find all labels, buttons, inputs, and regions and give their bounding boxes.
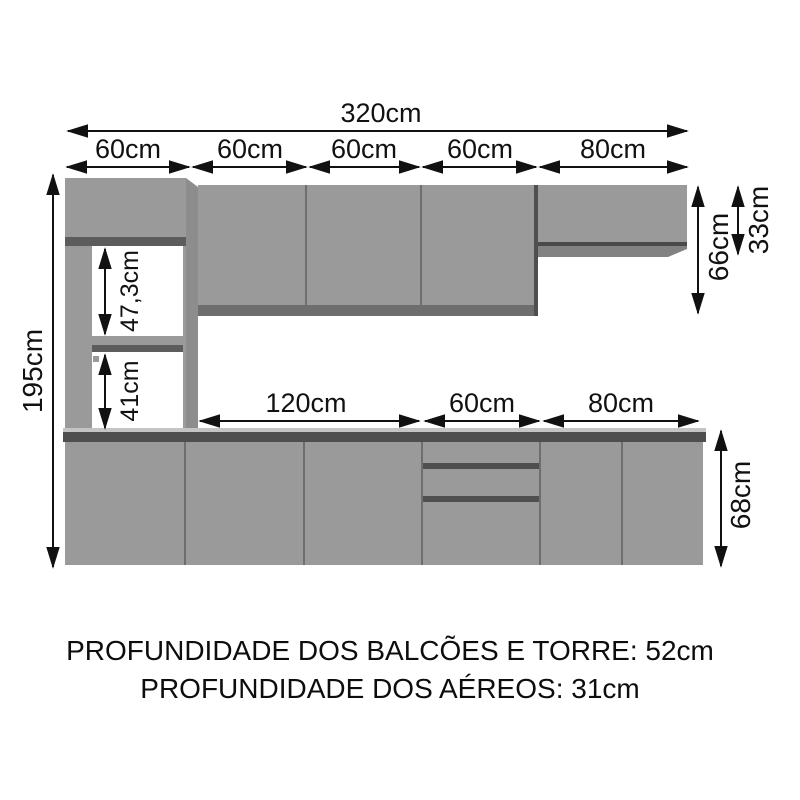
drawer-gap-line-1 xyxy=(423,463,539,469)
countertop-front-edge xyxy=(63,432,706,442)
dim-wall-tall-label: 66cm xyxy=(703,213,734,281)
kitchen-dimension-diagram: 320cm 60cm 60cm 60cm 60cm 80cm 195cm 47,… xyxy=(0,0,800,800)
countertop xyxy=(63,428,706,442)
tower-side-panel xyxy=(186,178,198,441)
wall-door-division-2 xyxy=(420,185,422,305)
dim-base-seg1-label: 120cm xyxy=(265,388,346,418)
tower-top-door-bottom-edge xyxy=(65,237,186,246)
short-wall-door-bottom-line xyxy=(538,242,687,246)
dim-tower-upper-label: 47,3cm xyxy=(116,250,144,332)
dim-total-width-label: 320cm xyxy=(340,98,421,128)
dim-total-width: 320cm xyxy=(68,98,687,131)
base-division-4 xyxy=(539,442,541,565)
dim-wall-tall-height: 66cm xyxy=(698,187,734,313)
wall-cabinet-right-edge xyxy=(534,185,538,316)
dim-tower-lower-label: 41cm xyxy=(116,360,144,421)
wall-cabinet-bottom-panel xyxy=(198,305,536,316)
base-division-3 xyxy=(421,442,423,565)
dim-top-segments: 60cm 60cm 60cm 60cm 80cm xyxy=(67,134,687,167)
short-wall-bottom-panel xyxy=(538,246,687,257)
drawer-gap-line-2 xyxy=(423,496,539,502)
dim-total-height-label: 195cm xyxy=(17,329,48,413)
dim-wall-short-height: 33cm xyxy=(738,186,774,254)
countertop-top-face xyxy=(63,428,706,432)
dim-seg3-label: 60cm xyxy=(331,134,397,164)
dim-seg2-label: 60cm xyxy=(217,134,283,164)
dim-base-seg2-label: 60cm xyxy=(449,388,515,418)
tower-middle-shelf-edge xyxy=(92,345,183,352)
short-wall-door xyxy=(538,185,687,242)
wall-door-division-1 xyxy=(305,185,307,305)
wall-cabinet-block xyxy=(198,185,536,305)
footer-depth-balcoes: PROFUNDIDADE DOS BALCÕES E TORRE: 52cm xyxy=(66,635,714,666)
diagram-svg: 320cm 60cm 60cm 60cm 60cm 80cm 195cm 47,… xyxy=(0,0,800,800)
base-division-5 xyxy=(621,442,623,565)
dim-seg1-label: 60cm xyxy=(95,134,161,164)
base-cabinet-block xyxy=(65,442,703,565)
dim-base-segments: 120cm 60cm 80cm xyxy=(200,388,698,421)
dim-base-height-label: 68cm xyxy=(725,461,756,529)
dim-seg4-label: 60cm xyxy=(447,134,513,164)
base-division-2 xyxy=(303,442,305,565)
footer-notes: PROFUNDIDADE DOS BALCÕES E TORRE: 52cm P… xyxy=(66,635,714,704)
footer-depth-aereos: PROFUNDIDADE DOS AÉREOS: 31cm xyxy=(140,673,639,704)
dim-base-seg3-label: 80cm xyxy=(588,388,654,418)
dim-base-height: 68cm xyxy=(721,431,756,566)
dim-seg5-label: 80cm xyxy=(580,134,646,164)
tower-shelf-peg xyxy=(93,356,99,362)
base-cabinets xyxy=(65,442,703,565)
dim-wall-short-label: 33cm xyxy=(743,186,774,254)
dim-total-height: 195cm xyxy=(17,175,53,567)
wall-cabinet-short xyxy=(538,185,687,257)
base-division-1 xyxy=(184,442,186,565)
wall-cabinets-tall xyxy=(198,185,538,316)
